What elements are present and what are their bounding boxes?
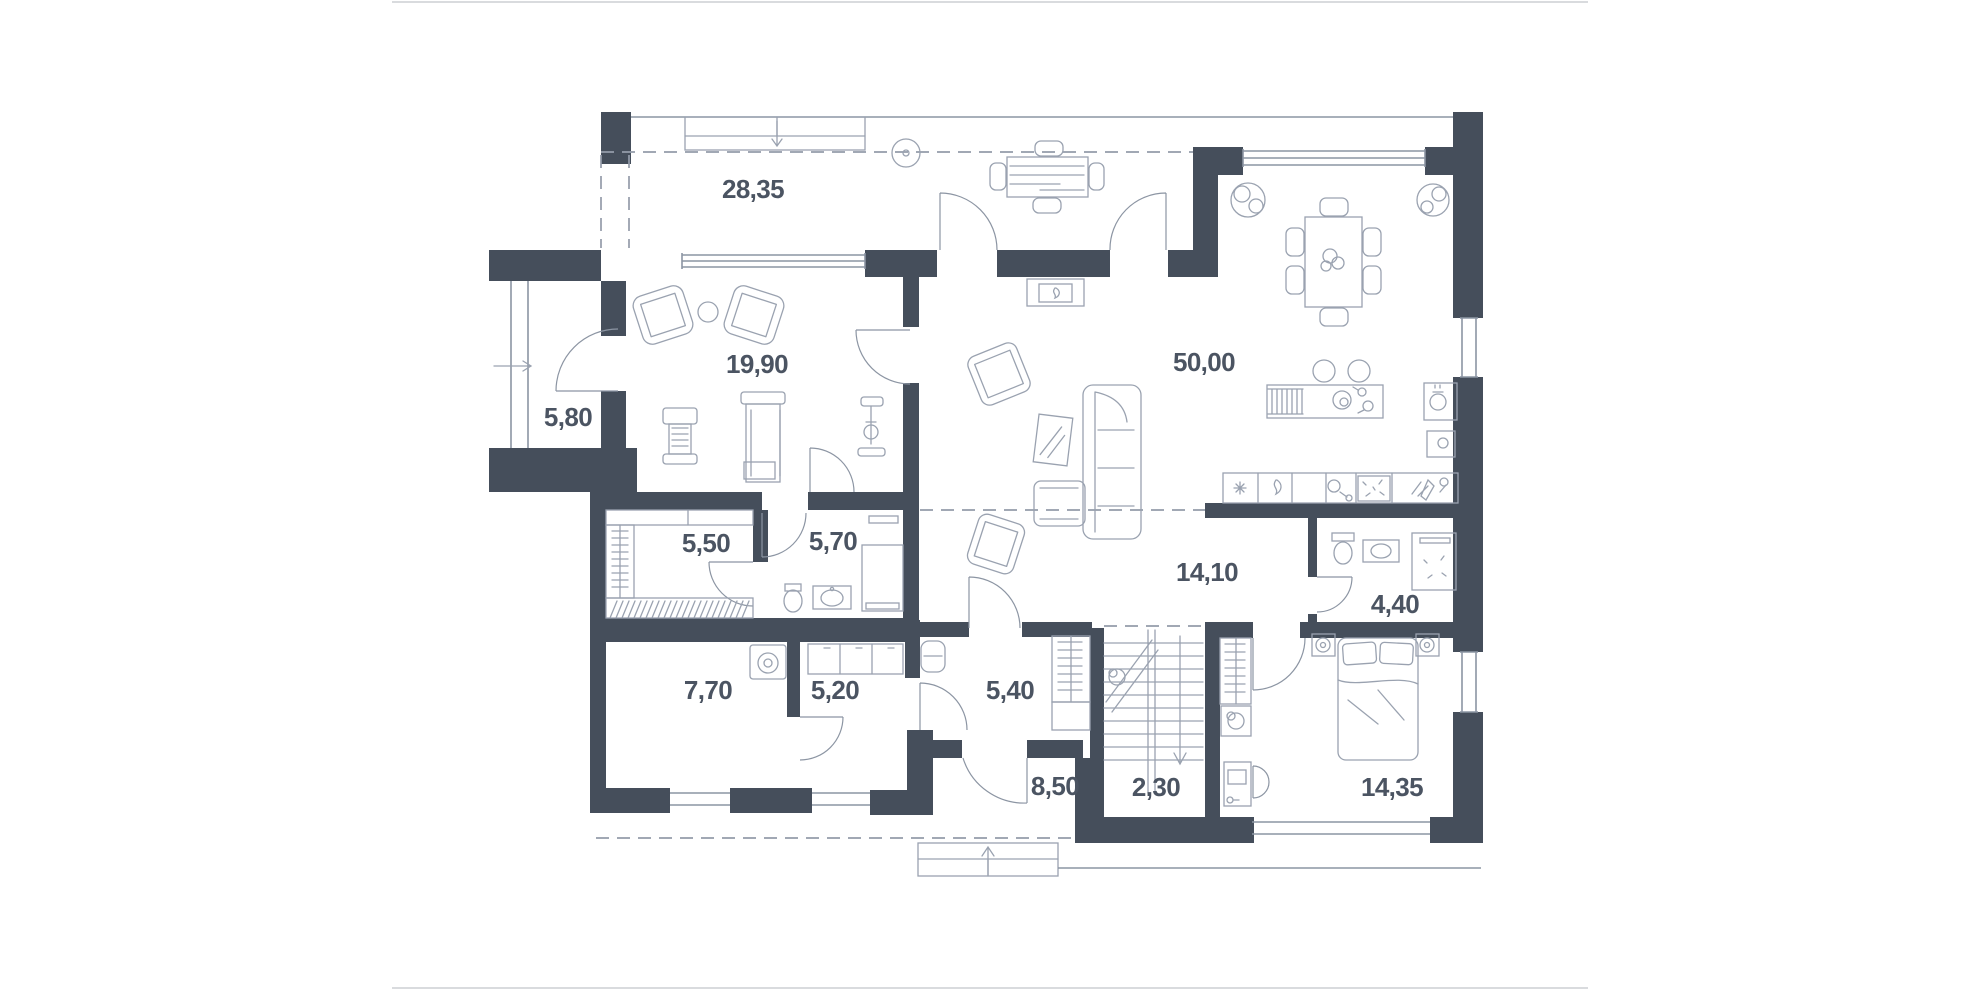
door-hall-to-bedroom — [1253, 638, 1305, 690]
walls — [489, 112, 1483, 843]
cabinet-icon — [1424, 383, 1457, 420]
fireplace-icon — [1027, 279, 1084, 306]
fridge-snowflake-icon — [1234, 482, 1246, 494]
bar-stool-icon — [1313, 360, 1370, 382]
bench-icon — [921, 641, 945, 672]
room-label-terrace: 28,35 — [722, 174, 784, 204]
room-label-entrance-terrace: 8,50 — [1031, 771, 1079, 801]
room-label-corridor: 5,20 — [811, 675, 859, 705]
door-gym-southeast — [810, 448, 854, 492]
floor-plan-page: 28,35 19,90 5,80 50,00 5,50 5,70 14,10 4… — [0, 0, 1980, 990]
window-dining-east — [1460, 318, 1478, 377]
laundry-fixtures — [750, 644, 903, 679]
desk-icon — [1224, 762, 1269, 806]
counter-icon — [1223, 473, 1458, 503]
kitchen-island-icon — [1267, 385, 1383, 418]
room-label-side-porch: 5,80 — [544, 402, 592, 432]
shower-icon — [862, 545, 903, 611]
door-gym-to-hall — [856, 330, 910, 384]
shower-icon — [1412, 533, 1456, 590]
window-dining-north — [1243, 149, 1425, 167]
page-border-lines — [392, 2, 1588, 988]
wardrobe-room-fitout — [606, 510, 753, 618]
wc-fixtures — [1332, 533, 1456, 590]
utensils-icon — [1412, 478, 1448, 500]
dining-table-icon — [1286, 198, 1381, 326]
armchair-icon — [965, 340, 1033, 408]
side-table-icon — [698, 302, 718, 322]
ceiling-lamp-icon — [892, 139, 920, 167]
window-corridor-south — [812, 793, 870, 805]
armchair-icon — [722, 283, 787, 347]
porch-edge-lines — [511, 281, 528, 448]
exercise-bike-icon — [858, 397, 885, 456]
wardrobe-rail-icon — [1220, 638, 1251, 704]
hob-flame-icon — [1274, 480, 1281, 494]
window-bedroom-east — [1460, 652, 1478, 712]
room-label-gym-lounge: 19,90 — [726, 349, 788, 379]
wardrobe-rail-icon — [606, 598, 753, 618]
door-to-wardrobe-room — [709, 562, 753, 606]
toilet-icon — [784, 584, 802, 612]
room-labels: 28,35 19,90 5,80 50,00 5,50 5,70 14,10 4… — [544, 174, 1423, 802]
room-label-wardrobe-room: 5,50 — [682, 528, 730, 558]
room-label-staircase: 2,30 — [1132, 772, 1180, 802]
toilet-icon — [1332, 533, 1354, 564]
door-front-entrance — [963, 758, 1027, 803]
window-bedroom-south — [1252, 822, 1430, 834]
shelf-icon — [869, 516, 898, 523]
door-entry-hall-to-corridor — [920, 683, 967, 730]
dining-furniture — [1231, 183, 1449, 326]
window-gym-north — [682, 253, 865, 269]
closet-shelf-icon — [606, 510, 753, 525]
living-furniture — [965, 340, 1141, 576]
door-to-bathroom — [762, 513, 806, 557]
plant-icon — [1221, 706, 1251, 736]
mixer-icon — [1328, 480, 1352, 501]
entrance-arrow-icon — [982, 847, 994, 875]
vanity-icon — [813, 586, 851, 609]
sink-cell-icon — [1358, 476, 1390, 501]
treadmill-icon — [741, 392, 785, 482]
washer-icon — [750, 645, 786, 679]
wardrobe-rail-icon — [1052, 636, 1090, 730]
sideboard-icon — [685, 117, 865, 150]
room-label-bathroom: 5,70 — [809, 526, 857, 556]
door-hall-to-wc — [1317, 577, 1352, 612]
room-label-hallway: 14,10 — [1176, 557, 1238, 587]
door-dining-right — [1110, 193, 1166, 250]
bed-icon — [1338, 638, 1418, 760]
door-porch-to-gym — [556, 329, 618, 391]
gym-furniture — [631, 283, 885, 482]
wardrobe-rail-icon — [606, 525, 634, 598]
door-corridor-to-laundry — [800, 717, 843, 760]
mirror-icon — [1033, 414, 1073, 466]
sofa-icon — [1034, 385, 1141, 539]
kitchen-furniture — [1027, 279, 1458, 503]
mat-icon — [744, 462, 775, 479]
room-label-kitchen-living: 50,00 — [1173, 347, 1235, 377]
plant-icon — [1417, 184, 1449, 216]
armchair-icon — [631, 283, 696, 347]
room-label-wc: 4,40 — [1371, 589, 1419, 619]
floor-plan: 28,35 19,90 5,80 50,00 5,50 5,70 14,10 4… — [0, 0, 1980, 990]
door-terrace-left — [940, 193, 997, 250]
room-label-laundry: 7,70 — [684, 675, 732, 705]
terrace-dashed-side — [601, 155, 629, 248]
armchair-icon — [965, 512, 1027, 576]
sink-icon — [1427, 431, 1455, 457]
vanity-icon — [1363, 540, 1399, 562]
weight-machine-icon — [663, 408, 697, 464]
chair-icon — [1253, 766, 1269, 798]
door-hall-to-entry-hall — [969, 577, 1020, 628]
room-label-entry-hall: 5,40 — [986, 675, 1034, 705]
cabinet-row-icon — [808, 644, 903, 674]
stairs-icon — [1104, 630, 1203, 793]
window-laundry-south — [670, 793, 730, 805]
room-label-bedroom: 14,35 — [1361, 772, 1423, 802]
plant-icon — [1231, 183, 1265, 217]
entrance-arrow-icon — [494, 361, 531, 371]
